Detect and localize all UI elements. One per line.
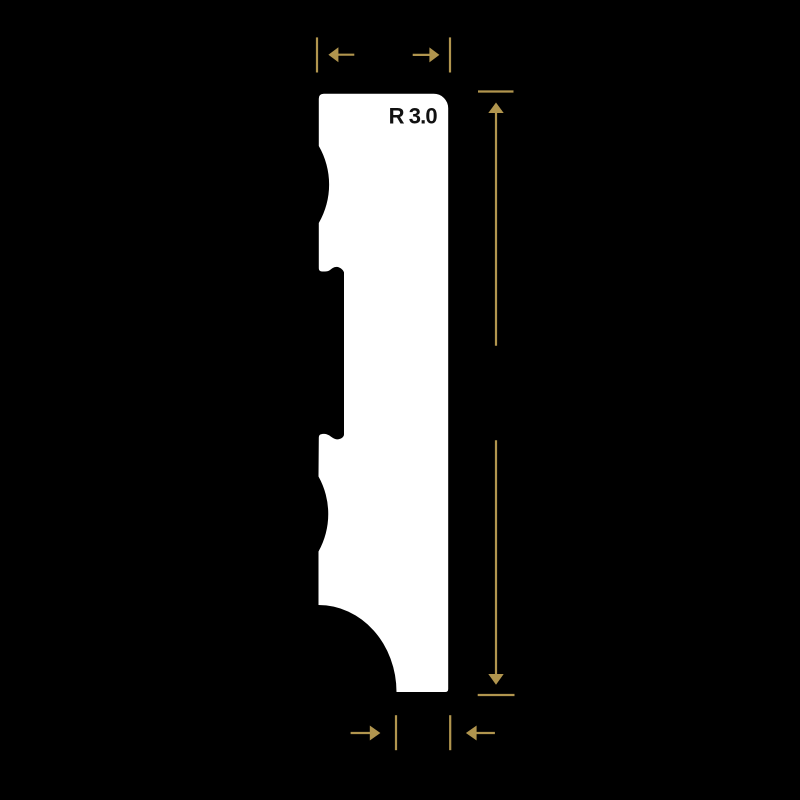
svg-text:R 3.0: R 3.0 — [389, 104, 438, 129]
